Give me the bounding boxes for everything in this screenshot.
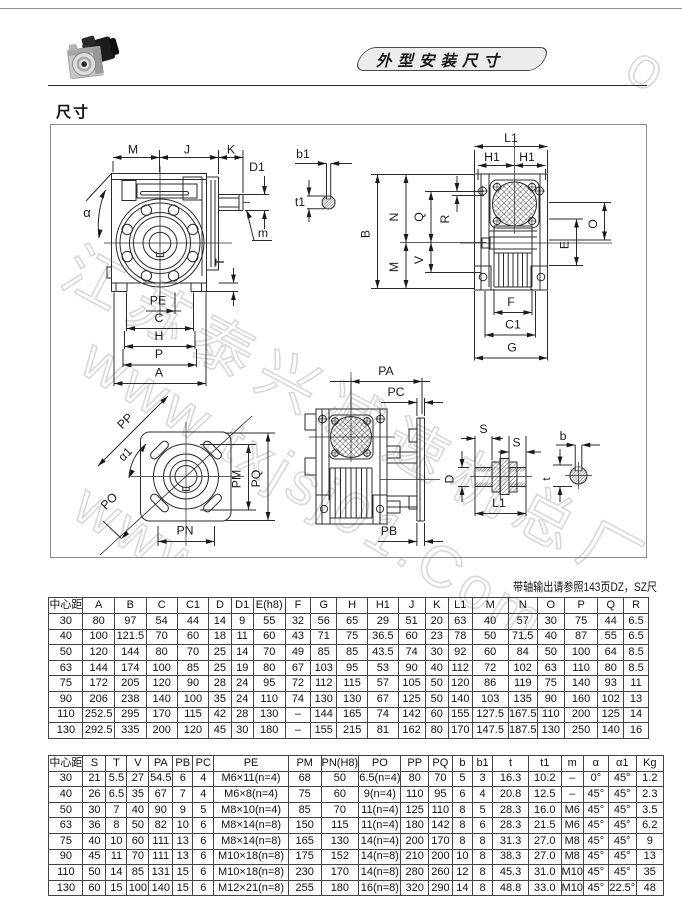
svg-text:PO: PO [98, 490, 120, 512]
svg-text:D: D [443, 474, 457, 483]
svg-text:B: B [359, 230, 373, 238]
svg-text:m: m [258, 226, 268, 240]
svg-text:P: P [155, 347, 163, 361]
svg-text:K: K [227, 143, 236, 157]
svg-text:PM: PM [230, 470, 244, 488]
svg-text:L1: L1 [504, 131, 518, 145]
svg-text:T: T [213, 258, 227, 266]
svg-text:α1: α1 [115, 444, 135, 464]
svg-text:t1: t1 [295, 195, 305, 209]
svg-text:G: G [507, 341, 517, 355]
svg-text:b: b [560, 429, 567, 443]
svg-text:H1: H1 [484, 150, 500, 164]
svg-text:PN: PN [176, 524, 193, 538]
svg-text:PC: PC [387, 385, 404, 399]
svg-text:M: M [387, 262, 401, 272]
svg-text:S: S [512, 436, 520, 450]
svg-text:b1: b1 [296, 147, 310, 161]
svg-text:E: E [558, 241, 572, 249]
svg-text:R: R [438, 214, 452, 223]
svg-text:Q: Q [412, 212, 426, 222]
svg-text:M: M [128, 143, 138, 157]
svg-text:J: J [184, 143, 190, 157]
svg-text:F: F [507, 295, 515, 309]
svg-text:PQ: PQ [249, 470, 263, 488]
svg-text:t: t [541, 477, 553, 480]
svg-text:V: V [412, 255, 426, 264]
svg-text:L1: L1 [492, 496, 506, 510]
svg-text:H: H [155, 329, 164, 343]
svg-text:C: C [155, 311, 164, 325]
svg-text:A: A [155, 366, 164, 380]
svg-text:S: S [479, 422, 487, 436]
svg-text:PP: PP [114, 410, 136, 432]
svg-text:C1: C1 [505, 318, 521, 332]
svg-text:PA: PA [378, 364, 394, 378]
svg-text:H1: H1 [519, 150, 535, 164]
svg-text:α: α [83, 205, 91, 220]
svg-text:O: O [586, 219, 600, 229]
svg-text:D1: D1 [249, 160, 265, 174]
svg-text:N: N [387, 213, 401, 222]
svg-text:PB: PB [381, 524, 397, 538]
svg-text:PE: PE [150, 294, 166, 308]
